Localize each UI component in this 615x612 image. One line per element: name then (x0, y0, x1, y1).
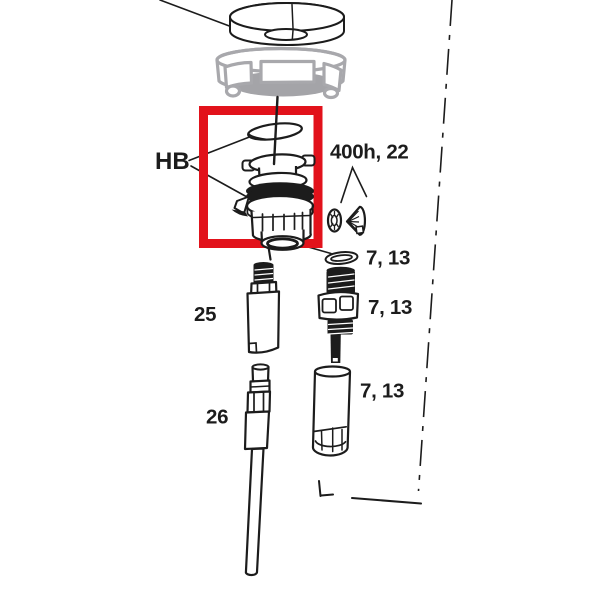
label-7-13-body: 7, 13 (360, 380, 404, 403)
label-hb: HB (155, 148, 190, 175)
part-seal-wheel (328, 210, 341, 232)
part-hb-knob-assembly (232, 97, 315, 260)
part-damper-body (313, 367, 350, 456)
label-7-13-bolt: 7, 13 (368, 296, 412, 319)
label-400h-22: 400h, 22 (330, 141, 409, 164)
exploded-parts-diagram: HB 400h, 22 7, 13 7, 13 7, 13 25 26 (0, 0, 615, 612)
part-cone (347, 207, 366, 235)
diagram-canvas: HB 400h, 22 7, 13 7, 13 7, 13 25 26 (0, 0, 615, 612)
label-25: 25 (194, 303, 216, 326)
top-cap-leader-line (160, 0, 232, 27)
part-25-shaft (248, 262, 280, 353)
part-ghost-dial (217, 49, 345, 98)
part-26-rod (245, 364, 270, 575)
cutaway-dashdot-line (419, 0, 453, 491)
part-adjuster-bolt (319, 267, 359, 363)
cutaway-corner-marks (319, 481, 421, 504)
group-400h-arrow (341, 168, 367, 203)
label-26: 26 (206, 406, 228, 429)
hb-leader-line-washer (189, 136, 252, 161)
part-top-cap (160, 0, 344, 45)
label-7-13-oring: 7, 13 (366, 247, 410, 270)
